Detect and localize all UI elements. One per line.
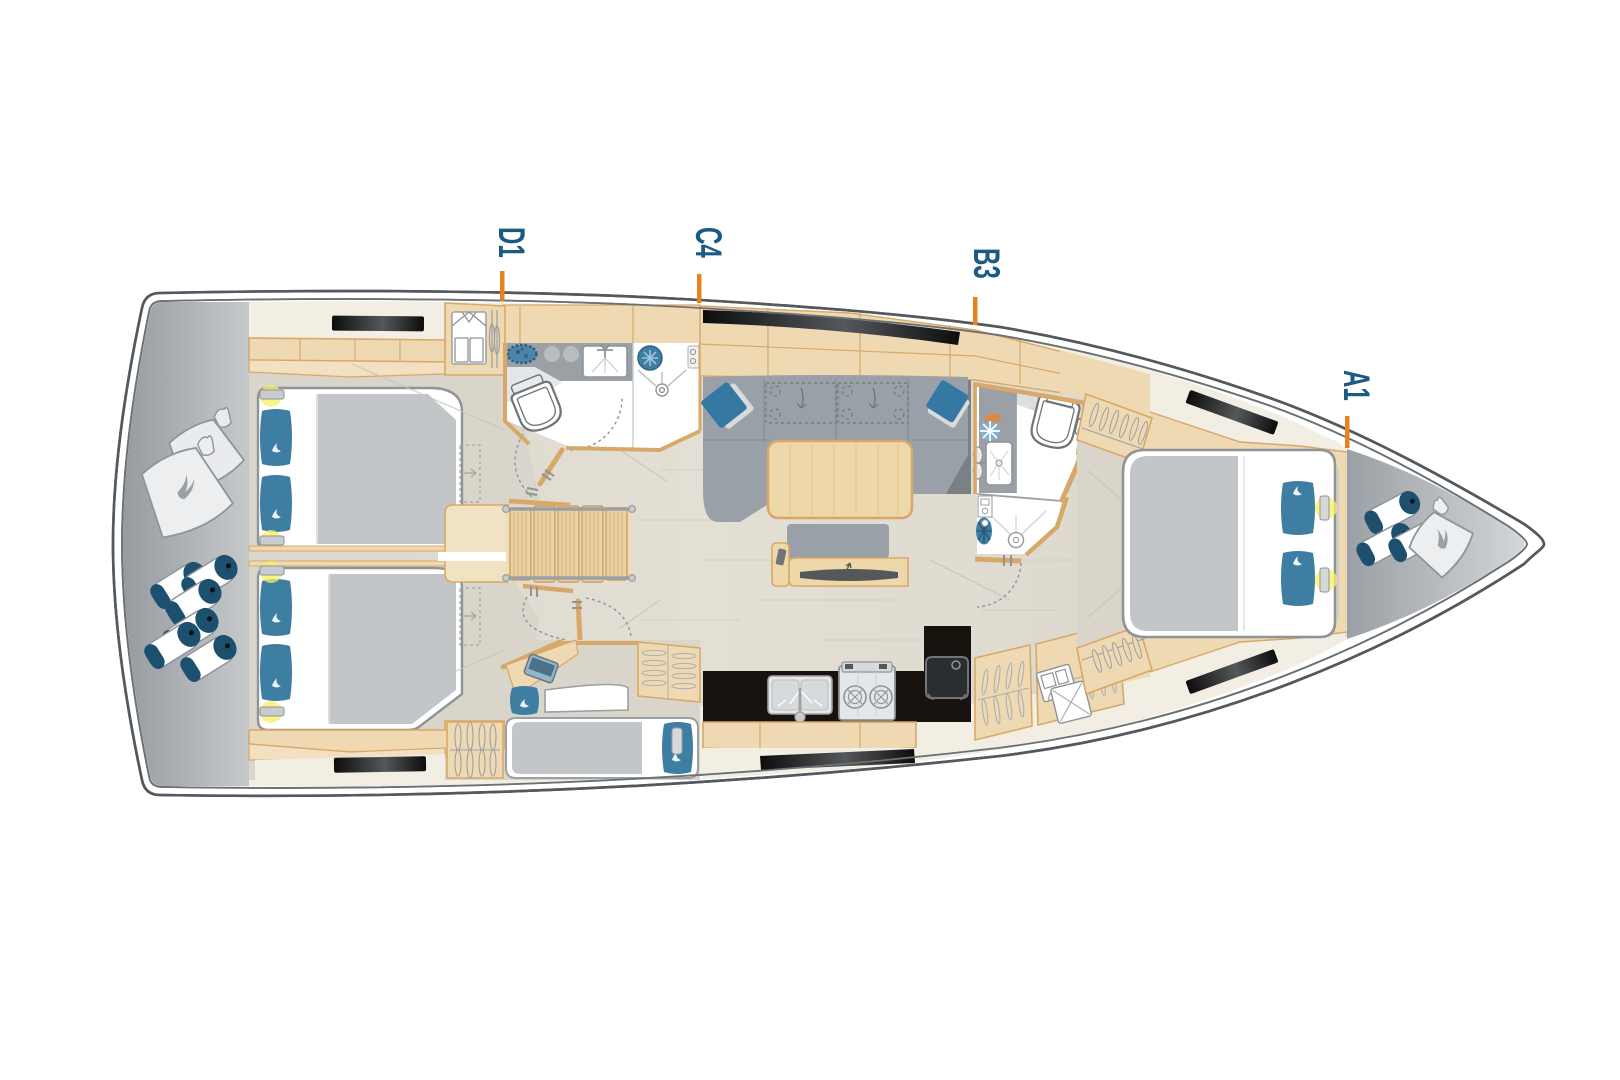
svg-text:C4: C4 [688, 227, 730, 258]
svg-text:D1: D1 [491, 227, 533, 258]
svg-text:A1: A1 [1336, 370, 1378, 401]
svg-text:B3: B3 [966, 248, 1008, 279]
